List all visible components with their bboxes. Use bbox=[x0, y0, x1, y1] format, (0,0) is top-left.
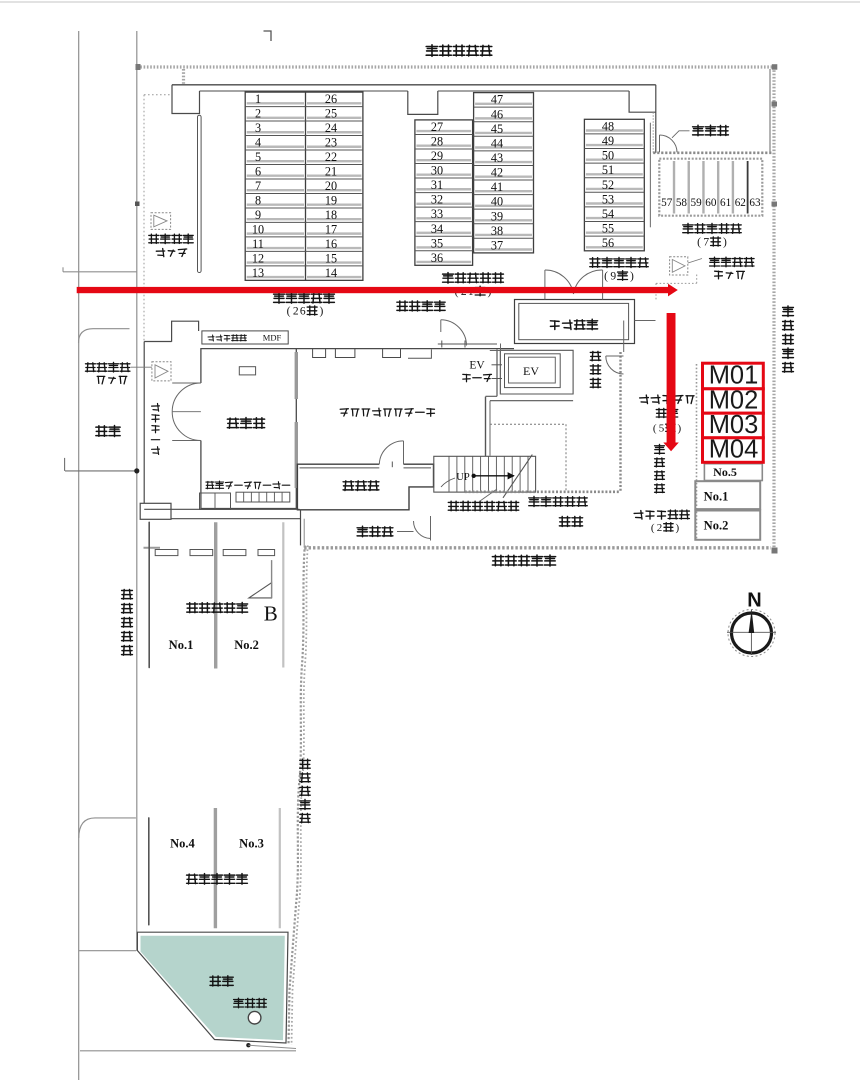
svg-text:47: 47 bbox=[491, 93, 503, 107]
svg-text:7: 7 bbox=[703, 237, 709, 249]
svg-text:No.2: No.2 bbox=[234, 638, 259, 652]
svg-text:45: 45 bbox=[491, 122, 503, 136]
svg-text:29: 29 bbox=[431, 149, 443, 163]
svg-text:23: 23 bbox=[325, 136, 337, 150]
svg-text:40: 40 bbox=[491, 195, 503, 209]
svg-text:No.4: No.4 bbox=[170, 836, 195, 850]
svg-text:49: 49 bbox=[602, 134, 614, 148]
svg-text:22: 22 bbox=[325, 150, 337, 164]
svg-text:21: 21 bbox=[325, 165, 337, 179]
svg-text:M01: M01 bbox=[709, 362, 759, 390]
svg-text:5: 5 bbox=[659, 423, 665, 435]
svg-text:36: 36 bbox=[431, 251, 443, 265]
svg-text:19: 19 bbox=[325, 193, 337, 207]
svg-text:16: 16 bbox=[325, 237, 337, 251]
svg-text:42: 42 bbox=[491, 166, 503, 180]
svg-text:No.1: No.1 bbox=[169, 638, 194, 652]
svg-text:37: 37 bbox=[491, 238, 503, 252]
svg-text:18: 18 bbox=[325, 208, 337, 222]
svg-text:31: 31 bbox=[431, 178, 443, 192]
svg-text:2: 2 bbox=[255, 107, 261, 121]
svg-text:6: 6 bbox=[255, 165, 261, 179]
svg-text:14: 14 bbox=[325, 266, 337, 280]
svg-text:59: 59 bbox=[691, 197, 703, 209]
svg-text:(: ( bbox=[697, 237, 701, 249]
svg-text:46: 46 bbox=[491, 107, 503, 121]
svg-text:N: N bbox=[747, 590, 761, 612]
svg-text:3: 3 bbox=[255, 121, 261, 135]
svg-text:): ) bbox=[723, 237, 727, 249]
svg-text:50: 50 bbox=[602, 149, 614, 163]
svg-text:5: 5 bbox=[255, 150, 261, 164]
svg-text:): ) bbox=[630, 271, 634, 283]
svg-text:1: 1 bbox=[255, 92, 261, 106]
svg-text:27: 27 bbox=[431, 120, 443, 134]
svg-text:No.2: No.2 bbox=[704, 519, 729, 533]
svg-text:55: 55 bbox=[602, 222, 614, 236]
svg-text:51: 51 bbox=[602, 163, 614, 177]
svg-text:61: 61 bbox=[720, 197, 731, 209]
svg-text:20: 20 bbox=[325, 179, 337, 193]
svg-text:15: 15 bbox=[325, 251, 337, 265]
svg-text:44: 44 bbox=[491, 136, 503, 150]
svg-text:(: ( bbox=[604, 271, 608, 283]
svg-text:No.3: No.3 bbox=[239, 836, 264, 850]
svg-text:62: 62 bbox=[735, 197, 746, 209]
svg-text:No.1: No.1 bbox=[704, 490, 729, 504]
svg-text:32: 32 bbox=[431, 193, 443, 207]
svg-text:UP: UP bbox=[456, 472, 470, 483]
svg-text:MDF: MDF bbox=[263, 333, 282, 343]
svg-text:63: 63 bbox=[749, 197, 761, 209]
svg-text:6: 6 bbox=[300, 306, 306, 318]
svg-text:24: 24 bbox=[325, 121, 337, 135]
svg-text:9: 9 bbox=[610, 271, 616, 283]
svg-text:8: 8 bbox=[255, 193, 261, 207]
svg-text:2: 2 bbox=[293, 306, 299, 318]
svg-text:2: 2 bbox=[657, 522, 663, 534]
svg-text:13: 13 bbox=[252, 266, 264, 280]
svg-text:56: 56 bbox=[602, 236, 614, 250]
svg-text:33: 33 bbox=[431, 207, 443, 221]
svg-text:M04: M04 bbox=[709, 436, 759, 464]
svg-text:(: ( bbox=[651, 522, 655, 534]
svg-text:60: 60 bbox=[705, 197, 717, 209]
svg-text:(: ( bbox=[653, 423, 657, 435]
svg-text:28: 28 bbox=[431, 135, 443, 149]
svg-text:B: B bbox=[264, 602, 278, 626]
svg-text:11: 11 bbox=[252, 237, 264, 251]
svg-text:58: 58 bbox=[676, 197, 688, 209]
svg-text:25: 25 bbox=[325, 107, 337, 121]
svg-text:26: 26 bbox=[325, 92, 337, 106]
svg-text:EV: EV bbox=[523, 364, 539, 378]
svg-text:4: 4 bbox=[255, 136, 261, 150]
svg-text:No.5: No.5 bbox=[713, 465, 737, 479]
svg-text:): ) bbox=[677, 423, 681, 435]
svg-text:52: 52 bbox=[602, 178, 614, 192]
svg-text:54: 54 bbox=[602, 207, 614, 221]
svg-text:53: 53 bbox=[602, 192, 614, 206]
svg-text:41: 41 bbox=[491, 180, 503, 194]
svg-text:17: 17 bbox=[325, 222, 337, 236]
svg-text:34: 34 bbox=[431, 222, 443, 236]
svg-text:): ) bbox=[675, 522, 679, 534]
svg-text:38: 38 bbox=[491, 224, 503, 238]
svg-text:57: 57 bbox=[661, 197, 673, 209]
svg-text:9: 9 bbox=[255, 208, 261, 222]
svg-text:43: 43 bbox=[491, 151, 503, 165]
svg-text:30: 30 bbox=[431, 164, 443, 178]
svg-text:7: 7 bbox=[255, 179, 261, 193]
svg-text:39: 39 bbox=[491, 209, 503, 223]
svg-text:48: 48 bbox=[602, 119, 614, 133]
svg-text:): ) bbox=[319, 306, 323, 318]
svg-text:10: 10 bbox=[252, 222, 264, 236]
svg-text:(: ( bbox=[287, 306, 291, 318]
svg-text:35: 35 bbox=[431, 236, 443, 250]
svg-text:EV: EV bbox=[469, 360, 485, 372]
svg-text:12: 12 bbox=[252, 251, 264, 265]
